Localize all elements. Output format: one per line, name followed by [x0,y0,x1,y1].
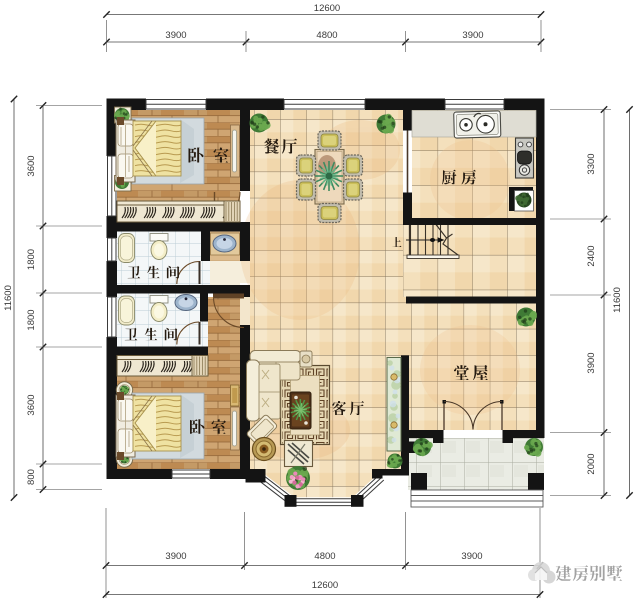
svg-text:1800: 1800 [26,249,37,270]
svg-text:4800: 4800 [314,551,335,562]
svg-text:11600: 11600 [3,285,14,311]
svg-text:3900: 3900 [462,30,483,41]
svg-text:3300: 3300 [586,153,597,174]
svg-text:2000: 2000 [586,453,597,474]
svg-text:12600: 12600 [312,580,338,591]
svg-text:3900: 3900 [586,352,597,373]
svg-text:1800: 1800 [26,309,37,330]
svg-text:3900: 3900 [165,30,186,41]
svg-text:11600: 11600 [612,287,623,313]
svg-text:4800: 4800 [316,30,337,41]
svg-text:3600: 3600 [26,155,37,176]
svg-text:2400: 2400 [586,245,597,266]
svg-text:800: 800 [26,469,37,485]
svg-text:3900: 3900 [165,551,186,562]
svg-text:3900: 3900 [461,551,482,562]
svg-text:3600: 3600 [26,394,37,415]
svg-text:12600: 12600 [314,3,340,14]
